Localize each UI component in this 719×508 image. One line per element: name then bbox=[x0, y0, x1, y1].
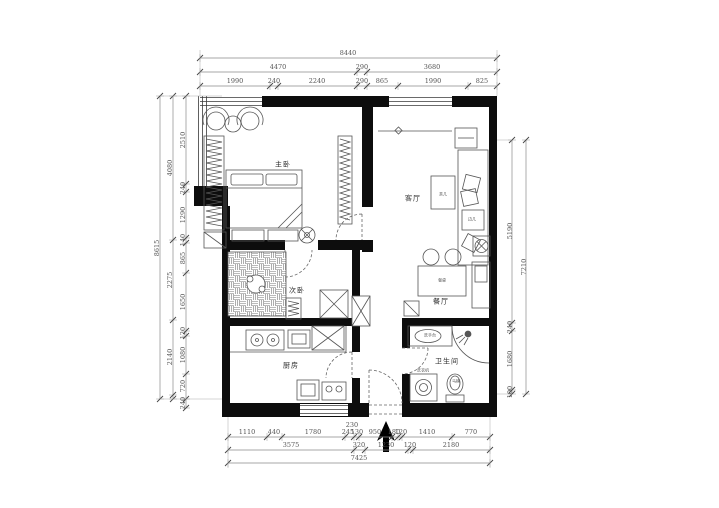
dim-label-320: 320 bbox=[353, 442, 365, 449]
lower-cabinet bbox=[297, 380, 319, 400]
furniture-label-washing-machine: 洗衣机 bbox=[417, 369, 429, 373]
dining-chair bbox=[423, 249, 439, 265]
fridge-cabinet bbox=[472, 262, 490, 308]
room-label-dining-room: 餐厅 bbox=[433, 299, 449, 306]
dim-label-4080: 4080 bbox=[167, 160, 174, 177]
dim-label-240: 240 bbox=[268, 78, 280, 85]
wardrobe-left bbox=[204, 136, 224, 230]
balcony-table bbox=[225, 116, 241, 132]
furniture-label-toilet: 马桶 bbox=[452, 380, 460, 384]
dim-label-2510: 2510 bbox=[180, 132, 187, 149]
room-label-kitchen: 厨房 bbox=[283, 363, 299, 370]
dim-label-440: 440 bbox=[268, 429, 280, 436]
dim-label-2275: 2275 bbox=[167, 272, 174, 289]
dim-label-240: 240 bbox=[180, 397, 187, 409]
dim-label-1230: 1230 bbox=[378, 442, 395, 449]
wardrobe-right bbox=[338, 136, 352, 224]
kitchen-sink bbox=[322, 382, 346, 400]
shaft-box bbox=[352, 296, 370, 326]
dim-label-240: 240 bbox=[507, 321, 514, 333]
kitchen-shaft bbox=[312, 326, 344, 350]
dim-label-4470: 4470 bbox=[270, 64, 287, 71]
dim-label-1080: 1080 bbox=[180, 347, 187, 364]
stove bbox=[246, 330, 284, 350]
dim-label-1410: 1410 bbox=[419, 429, 436, 436]
toilet bbox=[446, 374, 464, 402]
dim-label-2180: 2180 bbox=[443, 442, 460, 449]
dim-label-8440: 8440 bbox=[340, 50, 357, 57]
dim-label-3575: 3575 bbox=[283, 442, 300, 449]
room-label-bathroom: 卫生间 bbox=[435, 359, 459, 366]
dining-chair bbox=[445, 249, 461, 265]
dim-label-290: 290 bbox=[356, 64, 368, 71]
dim-label-1990: 1990 bbox=[227, 78, 244, 85]
furniture-label-side-table: 边几 bbox=[468, 218, 476, 222]
dim-label-1110: 1110 bbox=[239, 429, 256, 436]
floor-drain-icon bbox=[473, 236, 490, 256]
dim-label-2240: 2240 bbox=[309, 78, 326, 85]
dim-label-1680: 1680 bbox=[507, 351, 514, 368]
kitchen-cabinet bbox=[288, 330, 310, 348]
dim-label-865: 865 bbox=[180, 252, 187, 264]
dim-label-8615: 8615 bbox=[154, 240, 161, 257]
dim-label-7210: 7210 bbox=[521, 259, 528, 276]
dim-label-130: 130 bbox=[351, 429, 363, 436]
washing-machine bbox=[410, 374, 437, 401]
dim-label-2140: 2140 bbox=[167, 349, 174, 366]
dim-label-7425: 7425 bbox=[351, 455, 368, 462]
dim-label-290: 290 bbox=[356, 78, 368, 85]
dim-label-1290: 1290 bbox=[180, 207, 187, 224]
small-wardrobe bbox=[286, 298, 301, 319]
dim-label-120: 120 bbox=[404, 442, 416, 449]
dim-label-1780: 1780 bbox=[305, 429, 322, 436]
second-bedroom-furniture bbox=[228, 252, 301, 319]
dim-label-1990: 1990 bbox=[425, 78, 442, 85]
balcony-chairs bbox=[203, 107, 263, 132]
floor-plan-canvas: 主卧客厅餐厅次卧厨房卫生间茶几餐桌边几洗手台马桶洗衣机8440447029036… bbox=[0, 0, 719, 508]
dim-label-120: 120 bbox=[180, 327, 187, 339]
ceiling-fan-icon bbox=[299, 227, 315, 243]
room-label-second-bedroom: 次卧 bbox=[289, 288, 305, 295]
dim-label-120: 120 bbox=[395, 429, 407, 436]
dim-label-1650: 1650 bbox=[180, 294, 187, 311]
dim-label-3680: 3680 bbox=[424, 64, 441, 71]
furniture-label-coffee-table: 茶几 bbox=[439, 193, 447, 197]
furniture-label-dining-table: 餐桌 bbox=[438, 279, 446, 283]
dim-label-865: 865 bbox=[376, 78, 388, 85]
dim-label-720: 720 bbox=[180, 380, 187, 392]
dim-label-240: 240 bbox=[180, 182, 187, 194]
master-bed bbox=[226, 170, 302, 241]
shaft-box bbox=[320, 290, 348, 318]
dim-label-5190: 5190 bbox=[507, 223, 514, 240]
room-label-master-bedroom: 主卧 bbox=[275, 162, 291, 169]
dim-label-950: 950 bbox=[369, 429, 381, 436]
room-label-living-room: 客厅 bbox=[405, 196, 421, 203]
dim-label-770: 770 bbox=[465, 429, 477, 436]
furniture-label-wash-basin: 洗手台 bbox=[424, 334, 436, 338]
dim-label-825: 825 bbox=[476, 78, 488, 85]
dim-label-100: 100 bbox=[507, 386, 514, 398]
dim-label-140: 140 bbox=[180, 234, 187, 246]
